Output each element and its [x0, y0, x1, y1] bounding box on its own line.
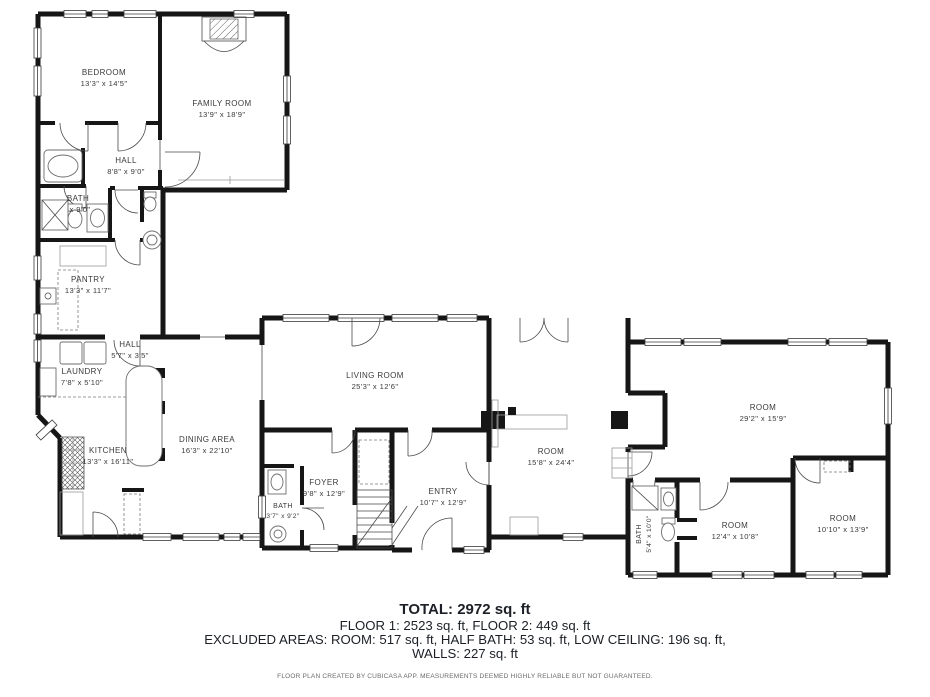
kitchen-counter-icon: [60, 492, 83, 535]
kitchen-closet-icon: [124, 494, 140, 534]
door-arc-icon: [700, 482, 728, 510]
disclaimer-text: FLOOR PLAN CREATED BY CUBICASA APP. MEAS…: [0, 673, 930, 680]
room-dims-foyer: 9'8" x 12'9": [303, 489, 345, 498]
room-dims-bedroom: 13'3" x 14'5": [81, 79, 128, 88]
door-arc-icon: [332, 430, 355, 453]
closet-rod-icon: [824, 461, 850, 472]
door-arc-icon: [118, 123, 146, 151]
floor-areas-text: FLOOR 1: 2523 sq. ft, FLOOR 2: 449 sq. f…: [0, 619, 930, 633]
room-dims-living-room: 25'3" x 12'6": [352, 382, 399, 391]
door-arc-icon: [422, 518, 452, 550]
room-label-room-middle: ROOM: [538, 447, 565, 456]
toilet2-icon: [662, 518, 676, 541]
door-arc-icon: [302, 508, 324, 530]
total-area-text: TOTAL: 2972 sq. ft: [0, 602, 930, 619]
room-dims-room-10: 10'10" x 13'9": [817, 525, 868, 534]
powder-sink-icon: [268, 470, 286, 494]
door-arc-icon: [115, 190, 138, 213]
room-label-dining-area: DINING AREA: [179, 435, 235, 444]
room-dims-room-12: 12'4" x 10'8": [712, 532, 759, 541]
room-dims-laundry: 7'8" x 5'10": [61, 378, 103, 387]
door-arc-icon: [466, 462, 489, 485]
half-bath-toilet-icon: [144, 192, 156, 211]
room-label-entry: ENTRY: [429, 487, 458, 496]
door-arc-icon: [544, 318, 568, 342]
door-arc-icon: [795, 458, 820, 483]
washer-icon: [60, 342, 82, 364]
room-dims-bath-foyer: 3'7" x 9'2": [266, 513, 299, 520]
room-label-pantry: PANTRY: [71, 275, 105, 284]
room-label-bath-upper: BATH: [67, 194, 89, 203]
dryer-icon: [84, 342, 106, 364]
room-dims-dining-area: 16'3" x 22'10": [181, 446, 232, 455]
room-label-bedroom: BEDROOM: [82, 68, 126, 77]
walls-area-text: WALLS: 227 sq. ft: [0, 647, 930, 661]
door-arc-icon: [165, 152, 200, 187]
room-dims-room-large: 29'2" x 15'9": [740, 414, 787, 423]
floor-plan-page: BEDROOM 13'3" x 14'5" FAMILY ROOM 13'9" …: [0, 0, 930, 697]
kitchen-island-icon: [126, 366, 162, 466]
room-label-living-room: LIVING ROOM: [346, 371, 404, 380]
area-summary: TOTAL: 2972 sq. ft FLOOR 1: 2523 sq. ft,…: [0, 602, 930, 661]
room-label-foyer: FOYER: [309, 478, 339, 487]
room-label-room-12: ROOM: [722, 521, 749, 530]
room-label-bath-right: BATH: [636, 524, 643, 544]
door-arc-icon: [115, 240, 140, 265]
laundry-cabinet-icon: [40, 368, 56, 396]
room-label-room-10: ROOM: [830, 514, 857, 523]
room-label-room-large: ROOM: [750, 403, 777, 412]
shower2-icon: [632, 486, 658, 510]
door-arc-icon: [60, 123, 88, 151]
door-arc-icon: [93, 512, 118, 537]
room-dims-entry: 10'7" x 12'9": [420, 498, 467, 507]
sink2-icon: [661, 488, 676, 510]
door-arc-icon: [352, 318, 380, 346]
excluded-areas-text: EXCLUDED AREAS: ROOM: 517 sq. ft, HALF B…: [0, 633, 930, 647]
powder-toilet-icon: [270, 526, 286, 542]
room-dims-kitchen: 13'3" x 16'11": [83, 457, 134, 466]
room-label-laundry: LAUNDRY: [62, 367, 103, 376]
room-label-hall-small: HALL: [119, 340, 141, 349]
room-label-bath-foyer: BATH: [273, 503, 293, 510]
door-arc-icon: [520, 318, 544, 342]
shower-icon: [42, 200, 68, 230]
outer-walls: [38, 14, 888, 575]
round-sink-icon: [143, 231, 161, 249]
cabinet-icon: [612, 448, 632, 478]
room-dims-hall-upper: 8'8" x 9'0": [107, 167, 145, 176]
fireplace-icon: [202, 17, 246, 52]
room-label-kitchen: KITCHEN: [89, 446, 127, 455]
room-dims-room-middle: 15'8" x 24'4": [528, 458, 575, 467]
room-dims-bath-upper: x 9'0": [70, 205, 91, 214]
door-arc-icon: [408, 430, 432, 456]
room-label-family-room: FAMILY ROOM: [192, 99, 251, 108]
door-arc-icon: [628, 452, 652, 476]
room-dims-family-room: 13'9" x 18'9": [199, 110, 246, 119]
floor-plan-drawing: BEDROOM 13'3" x 14'5" FAMILY ROOM 13'9" …: [0, 0, 930, 697]
room-dims-hall-small: 5'7" x 3'5": [111, 351, 149, 360]
stove-icon: [62, 437, 84, 489]
bathtub-icon: [44, 150, 82, 182]
room-label-hall-upper: HALL: [115, 156, 137, 165]
room-dims-pantry: 13'3" x 11'7": [65, 286, 111, 295]
room-dims-bath-right: 5'4" x 10'0": [646, 515, 653, 553]
